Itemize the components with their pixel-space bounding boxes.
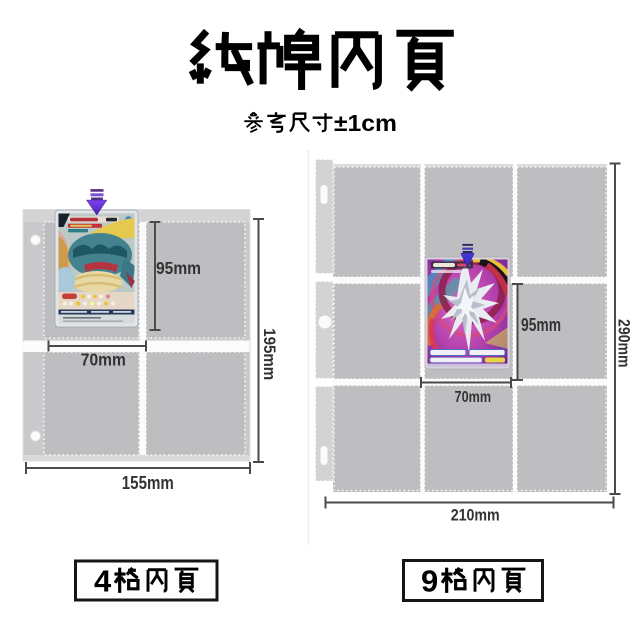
svg-text:155mm: 155mm: [122, 472, 174, 493]
svg-text:95mm: 95mm: [521, 315, 561, 335]
svg-text:70mm: 70mm: [81, 349, 126, 369]
svg-text:210mm: 210mm: [451, 506, 500, 524]
svg-text:195mm: 195mm: [260, 328, 278, 380]
svg-text:4: 4: [94, 564, 112, 599]
svg-text:70mm: 70mm: [455, 389, 492, 406]
svg-text:95mm: 95mm: [156, 258, 201, 278]
svg-text:9: 9: [421, 564, 438, 599]
svg-text:290mm: 290mm: [615, 319, 633, 368]
svg-text:±1cm: ±1cm: [334, 110, 397, 136]
